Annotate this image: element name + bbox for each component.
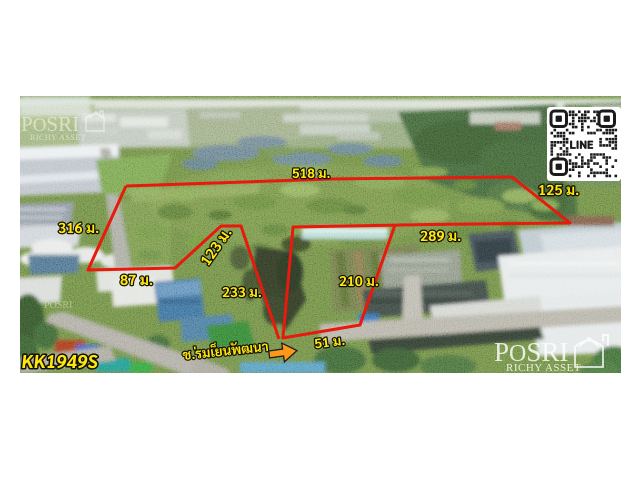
svg-text:RICHY ASSET: RICHY ASSET xyxy=(30,133,86,142)
svg-text:RICHY ASSET: RICHY ASSET xyxy=(506,362,581,374)
svg-text:POSRI: POSRI xyxy=(44,300,72,311)
svg-text:POSRI: POSRI xyxy=(584,250,612,261)
